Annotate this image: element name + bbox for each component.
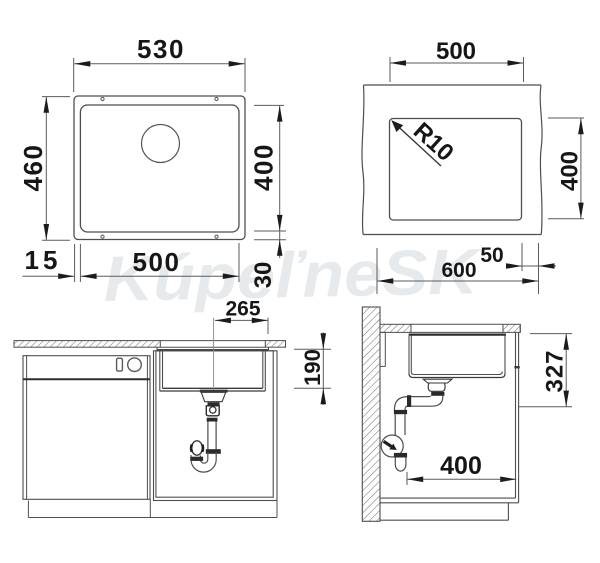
svg-text:30: 30: [250, 262, 277, 289]
svg-text:530: 530: [137, 34, 185, 64]
svg-text:400: 400: [249, 143, 279, 191]
svg-text:500: 500: [436, 38, 476, 65]
svg-text:265: 265: [225, 298, 260, 321]
svg-text:327: 327: [542, 349, 569, 392]
svg-text:50: 50: [480, 244, 503, 267]
svg-text:460: 460: [18, 144, 48, 192]
svg-text:400: 400: [440, 452, 482, 480]
svg-text:600: 600: [441, 259, 476, 282]
svg-text:400: 400: [557, 151, 584, 191]
svg-text:15: 15: [25, 245, 62, 275]
svg-text:R10: R10: [408, 117, 459, 167]
svg-text:190: 190: [300, 349, 325, 386]
svg-text:500: 500: [133, 247, 181, 277]
